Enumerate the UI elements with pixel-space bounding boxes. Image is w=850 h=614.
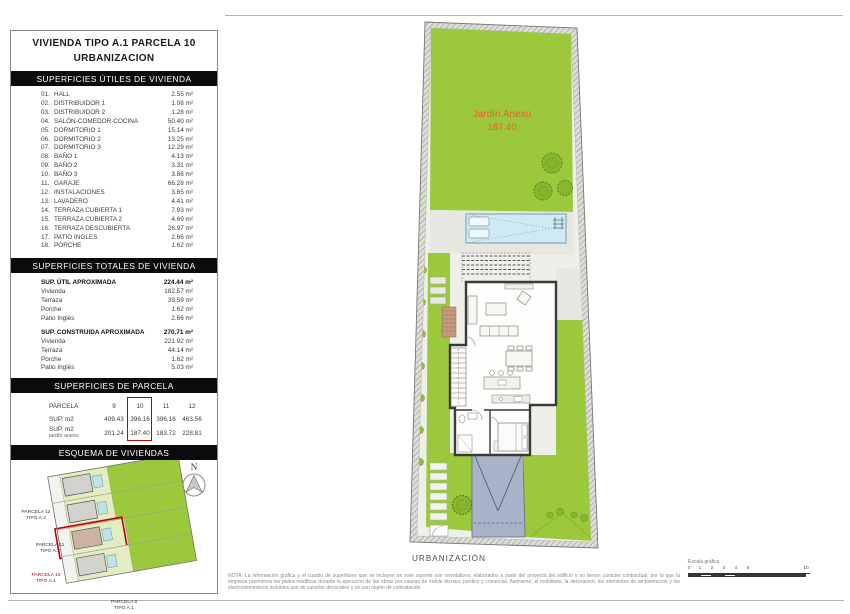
jardin-anexo-label: Jardín Anexo (473, 109, 532, 120)
room-area: 7.93 m² (153, 207, 193, 216)
room-number: 02. (41, 100, 54, 109)
room-area: 13.25 m² (153, 136, 193, 145)
room-name: INSTALACIONES (54, 189, 153, 198)
totals-block: SUP. ÚTIL APROXIMADA224.44 m² Vivienda18… (11, 273, 217, 373)
urbanizacion-label: URBANIZACIÓN (412, 553, 486, 563)
room-name: TERRAZA CUBIERTA 2 (54, 216, 153, 225)
nightstand (494, 441, 498, 451)
highlighted-parcel-box (127, 397, 152, 441)
room-area: 4.13 m² (153, 153, 193, 162)
main-floor-plan: URBANIZACIÓN Jardín Anexo 187.40 (402, 15, 612, 567)
room-name: PATIO INGLES (54, 234, 153, 243)
room-row: 07.DORMITORIO 312.29 m² (41, 144, 193, 153)
esquema-label-parcela-11: PARCELA 11TIPO A.2 (29, 543, 71, 555)
room-row: 09.BAÑO 23.31 m² (41, 162, 193, 171)
total-item: Vivienda182.57 m² (41, 288, 193, 297)
driveway-ramp (472, 453, 525, 537)
section-header-totales: SUPERFICIES TOTALES DE VIVIENDA (11, 258, 217, 273)
sun-lounger (469, 229, 489, 238)
floor-plan-drawing: URBANIZACIÓN Jardín Anexo 187.40 (402, 15, 612, 567)
room-row: 13.LAVADERO4.41 m² (41, 198, 193, 207)
room-name: GARAJE (54, 180, 153, 189)
esquema-label-parcela-12: PARCELA 12TIPO A.2 (15, 510, 57, 522)
room-row: 15.TERRAZA CUBIERTA 24.69 m² (41, 216, 193, 225)
scale-bar-label: Escala gráfica (688, 559, 810, 565)
room-name: HALL (54, 91, 153, 100)
room-number: 18. (41, 242, 54, 251)
total-util-header: SUP. ÚTIL APROXIMADA224.44 m² (41, 279, 193, 288)
room-name: DISTRIBUIDOR 1 (54, 100, 153, 109)
room-area: 3.31 m² (153, 162, 193, 171)
room-area: 26.97 m² (153, 225, 193, 234)
room-number: 07. (41, 144, 54, 153)
tv-cabinet (505, 284, 533, 289)
room-name: DORMITORIO 1 (54, 127, 153, 136)
esquema-label-parcela-9: PARCELA 9TIPO A.1 (103, 600, 145, 612)
room-row: 12.INSTALACIONES3.65 m² (41, 189, 193, 198)
wood-deck (442, 307, 456, 337)
room-row: 02.DISTRIBUIDOR 11.08 m² (41, 100, 193, 109)
room-number: 10. (41, 171, 54, 180)
room-area: 15.14 m² (153, 127, 193, 136)
room-name: PORCHE (54, 242, 153, 251)
bush-icon (453, 496, 472, 515)
room-row: 11.GARAJE66.28 m² (41, 180, 193, 189)
jardin-anexo-value: 187.40 (487, 122, 516, 133)
room-row: 06.DORMITORIO 213.25 m² (41, 136, 193, 145)
sun-lounger (469, 217, 489, 226)
room-area: 12.29 m² (153, 144, 193, 153)
room-number: 09. (41, 162, 54, 171)
room-area: 4.41 m² (153, 198, 193, 207)
room-area: 3.86 m² (153, 171, 193, 180)
section-header-parcela: SUPERFICIES DE PARCELA (11, 378, 217, 393)
scale-bar: Escala gráfica 0 1 2 3 4 5 10 (688, 559, 810, 576)
room-row: 16.TERRAZA DESCUBIERTA26.97 m² (41, 225, 193, 234)
room-name: BAÑO 3 (54, 171, 153, 180)
room-row: 05.DORMITORIO 115.14 m² (41, 127, 193, 136)
sheet-title-line1: VIVIENDA TIPO A.1 PARCELA 10 (11, 36, 217, 51)
room-number: 11. (41, 180, 54, 189)
room-name: BAÑO 1 (54, 153, 153, 162)
bed (498, 423, 528, 451)
room-area: 4.69 m² (153, 216, 193, 225)
room-list: 01.HALL2.55 m² 02.DISTRIBUIDOR 11.08 m² … (11, 86, 217, 253)
room-row: 14.TERRAZA CUBIERTA 17.93 m² (41, 207, 193, 216)
disclaimer-note: NOTA: La información gráfica y el cuadro… (228, 573, 680, 592)
room-area: 66.28 m² (153, 180, 193, 189)
room-area: 1.62 m² (153, 242, 193, 251)
total-item: Patio Inglés2.66 m² (41, 315, 193, 324)
room-number: 04. (41, 118, 54, 127)
room-number: 17. (41, 234, 54, 243)
parcela-table: PARCELA 9 10 11 12 SUP. m2 409.43 396.16… (11, 393, 217, 440)
room-number: 13. (41, 198, 54, 207)
room-number: 08. (41, 153, 54, 162)
esquema-diagram: PARCELA 12TIPO A.2 PARCELA 11TIPO A.2 PA… (11, 460, 217, 614)
room-row: 03.DISTRIBUIDOR 21.28 m² (41, 109, 193, 118)
room-number: 16. (41, 225, 54, 234)
total-construida-header: SUP. CONSTRUIDA APROXIMADA270.71 m² (41, 329, 193, 338)
pedestrian-gate (430, 525, 448, 536)
coffee-table (486, 303, 506, 315)
room-area: 1.08 m² (153, 100, 193, 109)
scale-bar-numbers: 0 1 2 3 4 5 10 (688, 566, 810, 573)
room-number: 05. (41, 127, 54, 136)
room-row: 18.PORCHE1.62 m² (41, 242, 193, 251)
room-name: DORMITORIO 3 (54, 144, 153, 153)
room-number: 01. (41, 91, 54, 100)
total-item: Porche1.62 m² (41, 306, 193, 315)
room-name: LAVADERO (54, 198, 153, 207)
total-item: Porche1.62 m² (41, 356, 193, 365)
dining-table (506, 346, 532, 371)
kitchen-counter (492, 395, 530, 403)
pool (466, 214, 566, 243)
section-header-esquema: ESQUEMA DE VIVIENDAS (11, 445, 217, 460)
room-name: TERRAZA CUBIERTA 1 (54, 207, 153, 216)
section-header-utiles: SUPERFICIES ÚTILES DE VIVIENDA (11, 71, 217, 86)
room-name: DORMITORIO 2 (54, 136, 153, 145)
room-row: 08.BAÑO 14.13 m² (41, 153, 193, 162)
room-name: DISTRIBUIDOR 2 (54, 109, 153, 118)
room-name: BAÑO 2 (54, 162, 153, 171)
sheet-title: VIVIENDA TIPO A.1 PARCELA 10 URBANIZACIO… (11, 31, 217, 66)
plan-sheet: VIVIENDA TIPO A.1 PARCELA 10 URBANIZACIO… (0, 0, 850, 614)
room-area: 3.65 m² (153, 189, 193, 198)
room-number: 15. (41, 216, 54, 225)
total-item: Patio Inglés5.03 m² (41, 364, 193, 373)
scale-bar-segments (688, 573, 810, 576)
north-compass-icon: N (177, 462, 211, 503)
room-name: TERRAZA DESCUBIERTA (54, 225, 153, 234)
planter (430, 277, 446, 304)
surface-data-panel: VIVIENDA TIPO A.1 PARCELA 10 URBANIZACIO… (10, 30, 218, 594)
room-number: 12. (41, 189, 54, 198)
esquema-label-parcela-10: PARCELA 10TIPO A.1 (25, 573, 67, 585)
sheet-title-line2: URBANIZACION (11, 51, 217, 66)
room-row: 01.HALL2.55 m² (41, 91, 193, 100)
room-row: 17.PATIO INGLES2.66 m² (41, 234, 193, 243)
room-area: 2.55 m² (153, 91, 193, 100)
room-number: 06. (41, 136, 54, 145)
jardin-anexo-area (430, 28, 573, 212)
staircase (451, 348, 466, 406)
room-number: 14. (41, 207, 54, 216)
compass-north-label: N (177, 462, 211, 472)
total-item: Terraza44.14 m² (41, 347, 193, 356)
room-area: 50.40 m² (153, 118, 193, 127)
total-item: Vivienda221.92 m² (41, 338, 193, 347)
total-item: Terraza39.59 m² (41, 297, 193, 306)
room-row: 10.BAÑO 33.86 m² (41, 171, 193, 180)
room-number: 03. (41, 109, 54, 118)
room-row: 04.SALÓN-COMEDOR-COCINA50.40 m² (41, 118, 193, 127)
room-area: 2.66 m² (153, 234, 193, 243)
room-name: SALÓN-COMEDOR-COCINA (54, 118, 153, 127)
room-area: 1.28 m² (153, 109, 193, 118)
